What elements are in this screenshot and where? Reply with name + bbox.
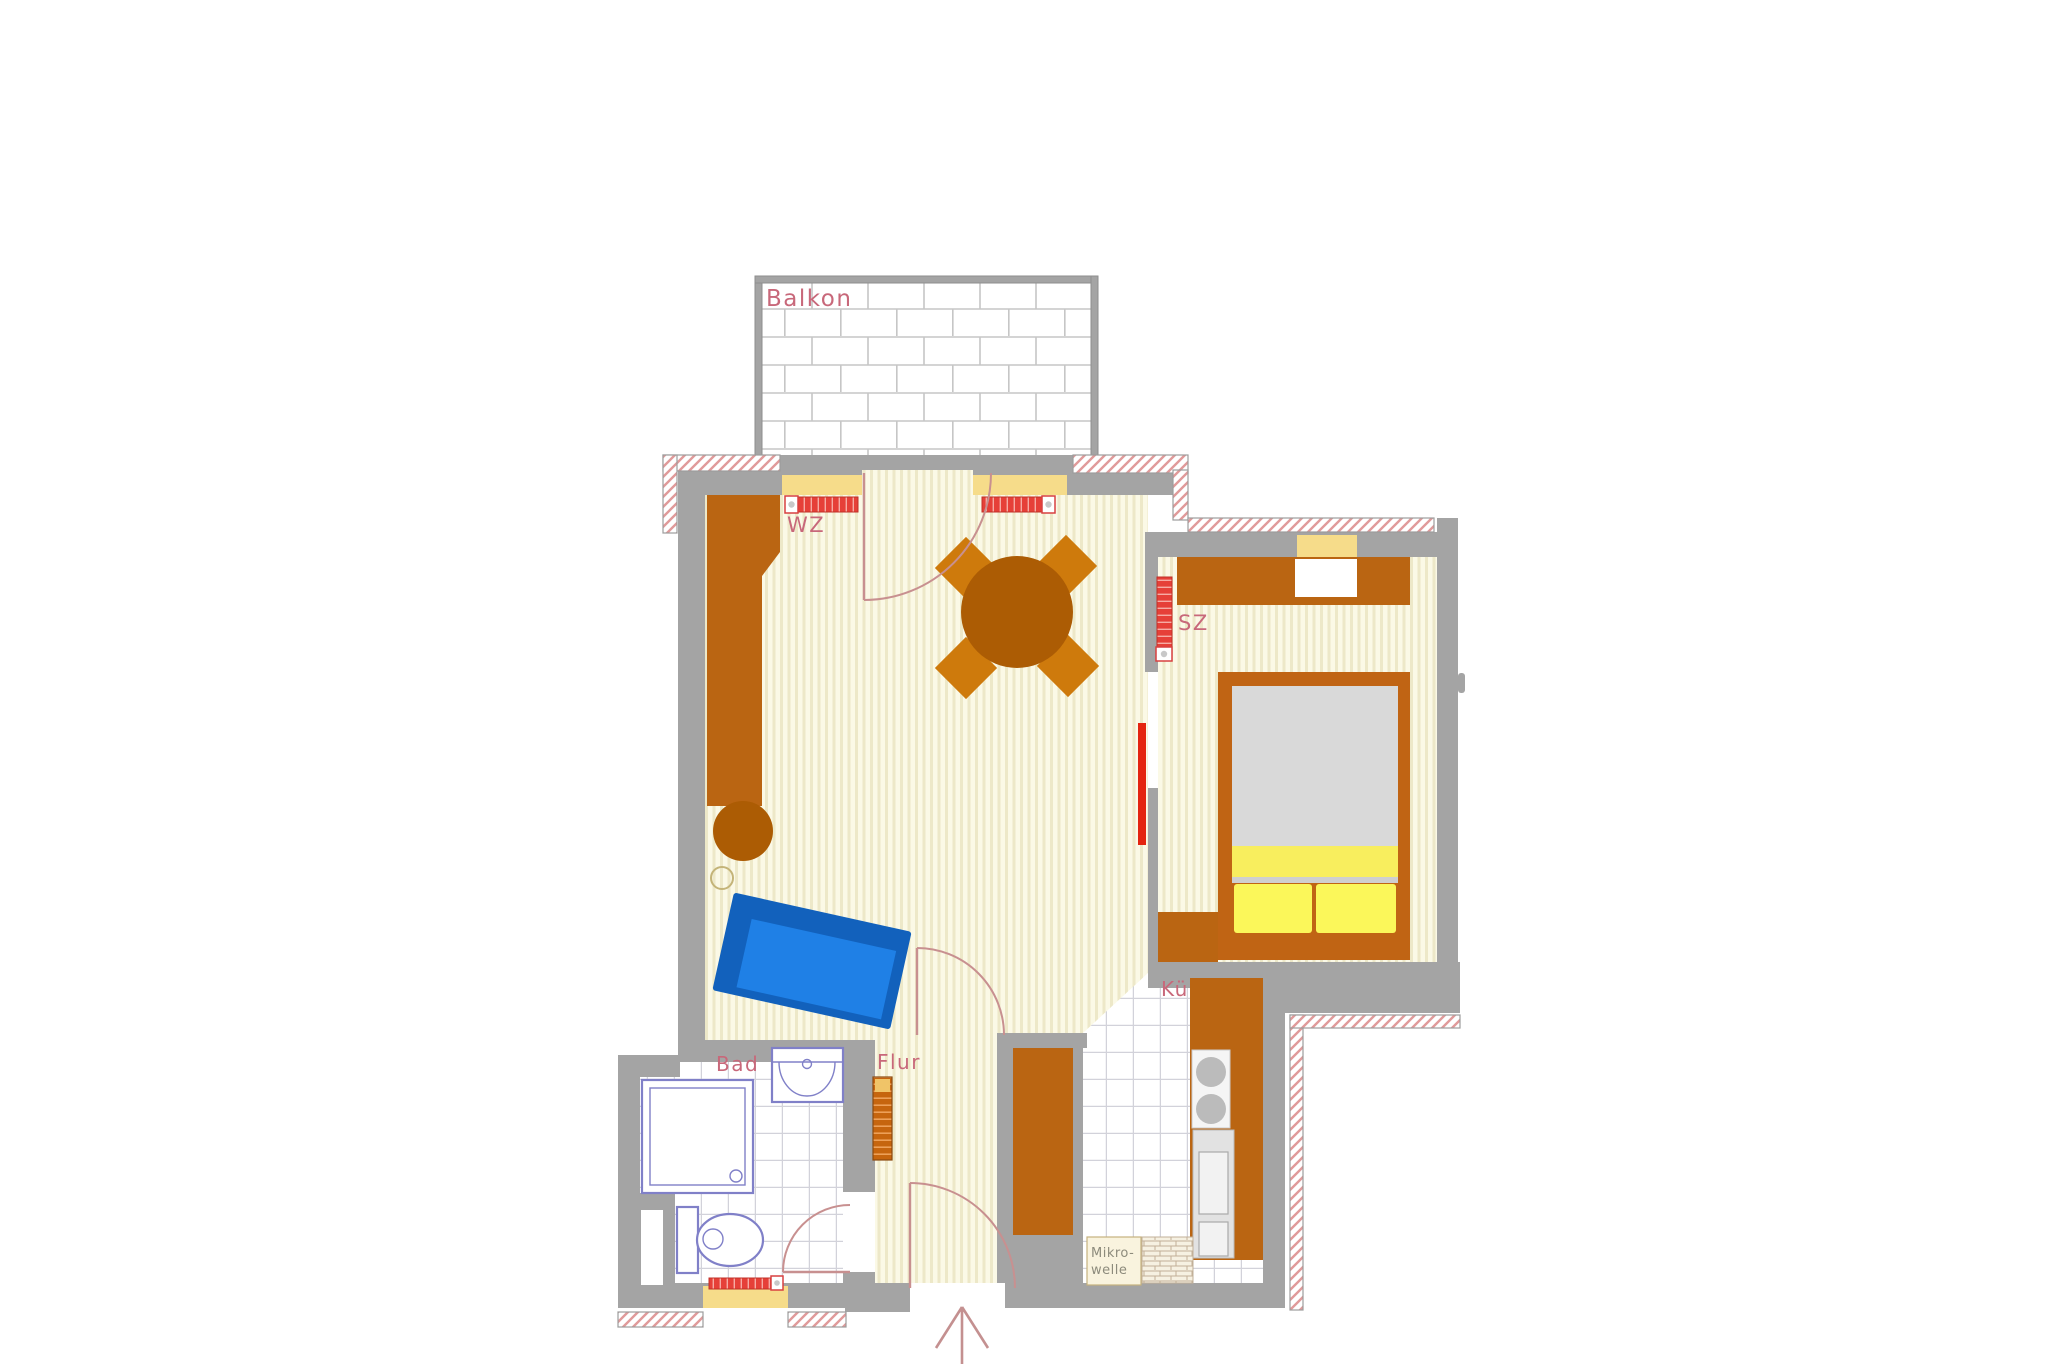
- microwave-label-line1: Mikro-: [1091, 1246, 1134, 1261]
- bedroom-sliding-door: [1138, 723, 1146, 845]
- bed-blanket: [1232, 846, 1398, 877]
- hatched-wall: [1290, 1015, 1303, 1310]
- floor-plan-page: Balkon WZ SZ Bad Flur Kü Mikro- welle: [0, 0, 2048, 1365]
- floor-plan-canvas: Balkon WZ SZ Bad Flur Kü Mikro- welle: [0, 0, 2048, 1365]
- kitchen-sink-drainer: [1199, 1222, 1228, 1256]
- radiator-body: [1157, 577, 1172, 647]
- wall-kitchen-right: [1263, 988, 1285, 1308]
- bed-divider: [1232, 877, 1398, 883]
- room-label-kitchen: Kü: [1161, 977, 1189, 1001]
- kitchen-sink: [1193, 1130, 1234, 1258]
- balcony-door-threshold: [862, 470, 973, 496]
- toilet-bowl: [697, 1214, 763, 1266]
- bed-mattress: [1232, 686, 1398, 846]
- window-sill: [782, 475, 862, 495]
- hatched-wall: [1290, 1015, 1460, 1028]
- stove-burner: [1196, 1094, 1226, 1124]
- room-label-bathroom: Bad: [716, 1052, 759, 1076]
- wall-kitchen-bottom: [1005, 1283, 1285, 1308]
- stove: [1192, 1050, 1230, 1128]
- hallway-wardrobe: [1013, 1048, 1073, 1235]
- radiator-valve-dot: [1045, 501, 1051, 507]
- wall-wardrobe-top: [997, 1033, 1087, 1048]
- radiator: [709, 1276, 783, 1290]
- window-sill: [973, 475, 1067, 495]
- radiator-valve-dot: [788, 501, 794, 507]
- bedside-cabinet: [1158, 912, 1218, 962]
- radiator-valve-dot: [1161, 651, 1167, 657]
- window-sill: [1297, 535, 1357, 557]
- bedroom-wardrobe: [1177, 557, 1410, 605]
- hatched-wall: [663, 455, 677, 533]
- wall-living-left: [678, 495, 705, 1062]
- bedroom-wardrobe-niche: [1295, 559, 1357, 597]
- room-label-hallway: Flur: [877, 1050, 921, 1074]
- wall-balcony-top: [755, 276, 1098, 283]
- hatched-wall: [788, 1312, 846, 1327]
- hatched-wall: [1173, 470, 1188, 520]
- room-label-balcony: Balkon: [766, 286, 852, 312]
- dining-table: [961, 556, 1073, 668]
- wall-kitchen-left: [1073, 1048, 1083, 1235]
- toilet-tank: [677, 1207, 698, 1273]
- wall-balcony-right: [1091, 276, 1098, 458]
- wall-entry-left-step: [845, 1283, 910, 1312]
- microwave-label-line2: welle: [1091, 1263, 1127, 1278]
- wall-niche: [641, 1210, 663, 1285]
- radiator-body: [982, 497, 1042, 512]
- radiator: [1156, 577, 1172, 661]
- hatched-wall: [1188, 518, 1434, 532]
- bathroom-door-opening: [843, 1192, 875, 1272]
- bed: [1218, 672, 1410, 960]
- hatched-wall: [663, 455, 780, 471]
- side-table: [713, 801, 773, 861]
- bed-pillow: [1234, 884, 1312, 933]
- wall-bedroom-left-lower: [1148, 788, 1158, 973]
- kitchen-sink-bowl: [1199, 1152, 1228, 1214]
- wall-below-wardrobe: [1013, 1235, 1083, 1283]
- hallway-floor: [875, 1040, 1013, 1283]
- wall-bedroom-bottom-corner: [1285, 962, 1460, 1013]
- shower-tray: [642, 1080, 753, 1193]
- kitchen-brick-block: [1142, 1237, 1193, 1283]
- radiator-valve-dot: [774, 1280, 780, 1286]
- wall-bedroom-top: [1145, 532, 1440, 557]
- stove-burner: [1196, 1057, 1226, 1087]
- wall-bedroom-right: [1437, 518, 1458, 988]
- room-label-living-room: WZ: [787, 513, 825, 537]
- bathroom-sink: [772, 1048, 843, 1102]
- radiator: [785, 496, 858, 513]
- hatched-wall: [1073, 455, 1188, 473]
- radiator-body: [798, 497, 858, 512]
- radiator-body: [709, 1278, 772, 1289]
- hallway-shelf-top: [875, 1079, 890, 1092]
- room-label-bedroom: SZ: [1178, 611, 1209, 635]
- shower: [642, 1080, 753, 1193]
- bed-pillow: [1316, 884, 1396, 933]
- hatched-wall: [618, 1312, 703, 1327]
- wall-balcony-left: [755, 276, 762, 458]
- radiator: [982, 496, 1055, 513]
- entrance-arrow: [936, 1307, 988, 1364]
- wall-exterior-nub: [1458, 673, 1465, 693]
